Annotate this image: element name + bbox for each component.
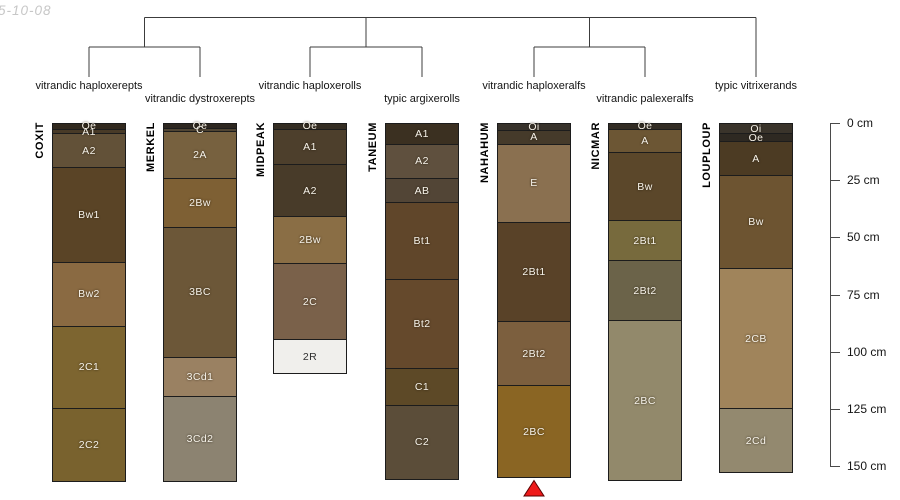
- horizon-louploup-a: A: [719, 142, 793, 175]
- horizon-midpeak-2bw: 2Bw: [273, 217, 347, 264]
- horizon-taneum-a2: A2: [385, 145, 459, 179]
- horizon-label: A1: [415, 129, 429, 139]
- taxon-label-midpeak: vitrandic haploxerolls: [259, 80, 362, 92]
- horizon-midpeak-a1: A1: [273, 130, 347, 165]
- horizon-label: 2Cd: [746, 436, 766, 446]
- horizon-label: 2Bw: [189, 198, 211, 208]
- taxon-label-nicmar: vitrandic palexeralfs: [596, 93, 693, 105]
- horizon-coxit-2c2: 2C2: [52, 409, 126, 482]
- horizon-label: AB: [415, 186, 430, 196]
- horizon-label: Oe: [638, 121, 653, 131]
- horizon-label: A: [641, 136, 648, 146]
- horizon-label: Bw: [748, 217, 763, 227]
- horizon-taneum-c2: C2: [385, 406, 459, 480]
- horizon-label: A2: [415, 156, 429, 166]
- profile-name-louploup: LOUPLOUP: [701, 122, 714, 188]
- horizon-label: 2CB: [745, 334, 767, 344]
- horizon-label: A: [752, 154, 759, 164]
- horizon-label: Oe: [303, 121, 318, 131]
- horizon-label: C: [196, 125, 204, 135]
- horizon-nahahum-e: E: [497, 145, 571, 223]
- horizon-label: A: [530, 132, 537, 142]
- horizon-nicmar-2bt1: 2Bt1: [608, 221, 682, 261]
- horizon-label: 2C2: [79, 440, 99, 450]
- profile-name-nicmar: NICMAR: [590, 122, 603, 170]
- taxon-label-coxit: vitrandic haploxerepts: [35, 80, 142, 92]
- horizon-label: Bw1: [78, 210, 100, 220]
- horizon-nicmar-a: A: [608, 130, 682, 153]
- horizon-taneum-a1: A1: [385, 123, 459, 145]
- horizon-merkel-2bw: 2Bw: [163, 179, 237, 228]
- depth-tick-label: 75 cm: [847, 288, 880, 302]
- taxon-label-nahahum: vitrandic haploxeralfs: [482, 80, 585, 92]
- horizon-louploup-2cd: 2Cd: [719, 409, 793, 473]
- soil-profile-figure: 5-10-08 vitrandic haploxereptsvitrandic …: [0, 0, 900, 500]
- horizon-label: A1: [82, 127, 96, 137]
- depth-tick-label: 100 cm: [847, 345, 886, 359]
- horizon-nahahum-2bt1: 2Bt1: [497, 223, 571, 323]
- depth-tick: [830, 237, 840, 238]
- horizon-label: 2Bw: [299, 235, 321, 245]
- horizon-label: A2: [82, 146, 96, 156]
- profile-name-taneum: TANEUM: [367, 122, 380, 172]
- horizon-louploup-bw: Bw: [719, 176, 793, 270]
- horizon-midpeak-a2: A2: [273, 165, 347, 217]
- horizon-nicmar-2bt2: 2Bt2: [608, 261, 682, 321]
- horizon-label: 3BC: [189, 287, 211, 297]
- depth-tick-label: 50 cm: [847, 230, 880, 244]
- horizon-nahahum-a: A: [497, 131, 571, 145]
- depth-tick: [830, 409, 840, 410]
- horizon-label: 3Cd1: [187, 372, 214, 382]
- horizon-nicmar-oe: Oe: [608, 123, 682, 130]
- horizon-label: Bw2: [78, 289, 100, 299]
- horizon-coxit-2c1: 2C1: [52, 327, 126, 409]
- horizon-label: 2Bt1: [633, 236, 656, 246]
- depth-tick-label: 25 cm: [847, 173, 880, 187]
- depth-tick-label: 0 cm: [847, 116, 873, 130]
- horizon-label: 3Cd2: [187, 434, 214, 444]
- horizon-label: 2Bt2: [633, 286, 656, 296]
- horizon-label: 2C: [303, 297, 317, 307]
- horizon-midpeak-oe: Oe: [273, 123, 347, 130]
- horizon-label: 2BC: [634, 396, 656, 406]
- horizon-merkel-2a: 2A: [163, 132, 237, 179]
- horizon-label: C1: [415, 382, 429, 392]
- horizon-nahahum-2bc: 2BC: [497, 386, 571, 478]
- horizon-merkel-3cd1: 3Cd1: [163, 358, 237, 397]
- horizon-coxit-bw1: Bw1: [52, 168, 126, 263]
- horizon-label: Bw: [637, 182, 652, 192]
- horizon-nicmar-bw: Bw: [608, 153, 682, 222]
- horizon-midpeak-2r: 2R: [273, 340, 347, 373]
- horizon-label: 2BC: [523, 427, 545, 437]
- horizon-nahahum-2bt2: 2Bt2: [497, 322, 571, 386]
- horizon-nicmar-2bc: 2BC: [608, 321, 682, 481]
- horizon-nahahum-oi: Oi: [497, 123, 571, 131]
- horizon-label: Oe: [749, 133, 764, 143]
- horizon-label: E: [530, 178, 537, 188]
- profile-name-nahahum: NAHAHUM: [479, 122, 492, 183]
- horizon-label: 2Bt1: [522, 267, 545, 277]
- horizon-taneum-c1: C1: [385, 369, 459, 406]
- horizon-midpeak-2c: 2C: [273, 264, 347, 341]
- taxon-label-taneum: typic argixerolls: [384, 93, 460, 105]
- depth-tick-label: 150 cm: [847, 459, 886, 473]
- horizon-merkel-3bc: 3BC: [163, 228, 237, 357]
- horizon-label: Bt2: [414, 319, 431, 329]
- profile-name-coxit: COXIT: [34, 122, 47, 159]
- horizon-louploup-2cb: 2CB: [719, 269, 793, 409]
- horizon-label: 2C1: [79, 362, 99, 372]
- profile-name-midpeak: MIDPEAK: [255, 122, 268, 177]
- horizon-label: A1: [303, 142, 317, 152]
- taxon-label-louploup: typic vitrixerands: [715, 80, 797, 92]
- horizon-taneum-bt1: Bt1: [385, 203, 459, 280]
- horizon-label: 2R: [303, 352, 317, 362]
- depth-tick: [830, 352, 840, 353]
- horizon-label: Bt1: [414, 236, 431, 246]
- depth-tick-label: 125 cm: [847, 402, 886, 416]
- horizon-merkel-3cd2: 3Cd2: [163, 397, 237, 483]
- depth-tick: [830, 123, 840, 124]
- depth-tick: [830, 180, 840, 181]
- horizon-coxit-a2: A2: [52, 134, 126, 167]
- horizon-louploup-oe: Oe: [719, 134, 793, 142]
- horizon-taneum-bt2: Bt2: [385, 280, 459, 369]
- horizon-label: C2: [415, 437, 429, 447]
- depth-tick: [830, 295, 840, 296]
- red-triangle-marker: [521, 479, 547, 498]
- depth-tick: [830, 466, 840, 467]
- taxon-label-merkel: vitrandic dystroxerepts: [145, 93, 255, 105]
- horizon-label: 2A: [193, 150, 207, 160]
- profile-name-merkel: MERKEL: [145, 122, 158, 172]
- horizon-label: A2: [303, 186, 317, 196]
- horizon-taneum-ab: AB: [385, 179, 459, 203]
- horizon-coxit-bw2: Bw2: [52, 263, 126, 327]
- horizon-label: 2Bt2: [522, 349, 545, 359]
